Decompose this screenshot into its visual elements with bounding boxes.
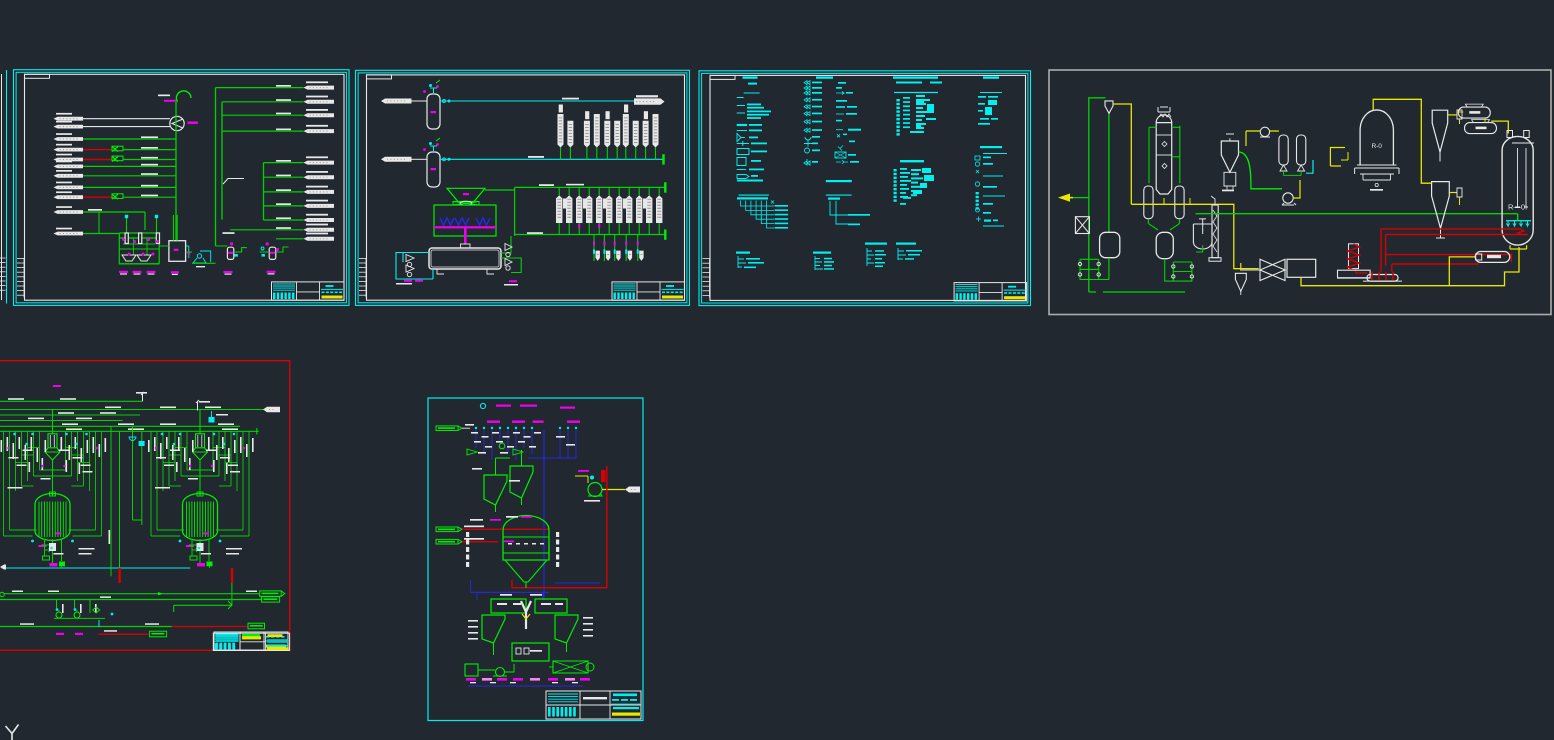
svg-text:R-0: R-0 <box>1371 143 1382 150</box>
svg-text:R—0I: R—0I <box>1508 203 1527 212</box>
